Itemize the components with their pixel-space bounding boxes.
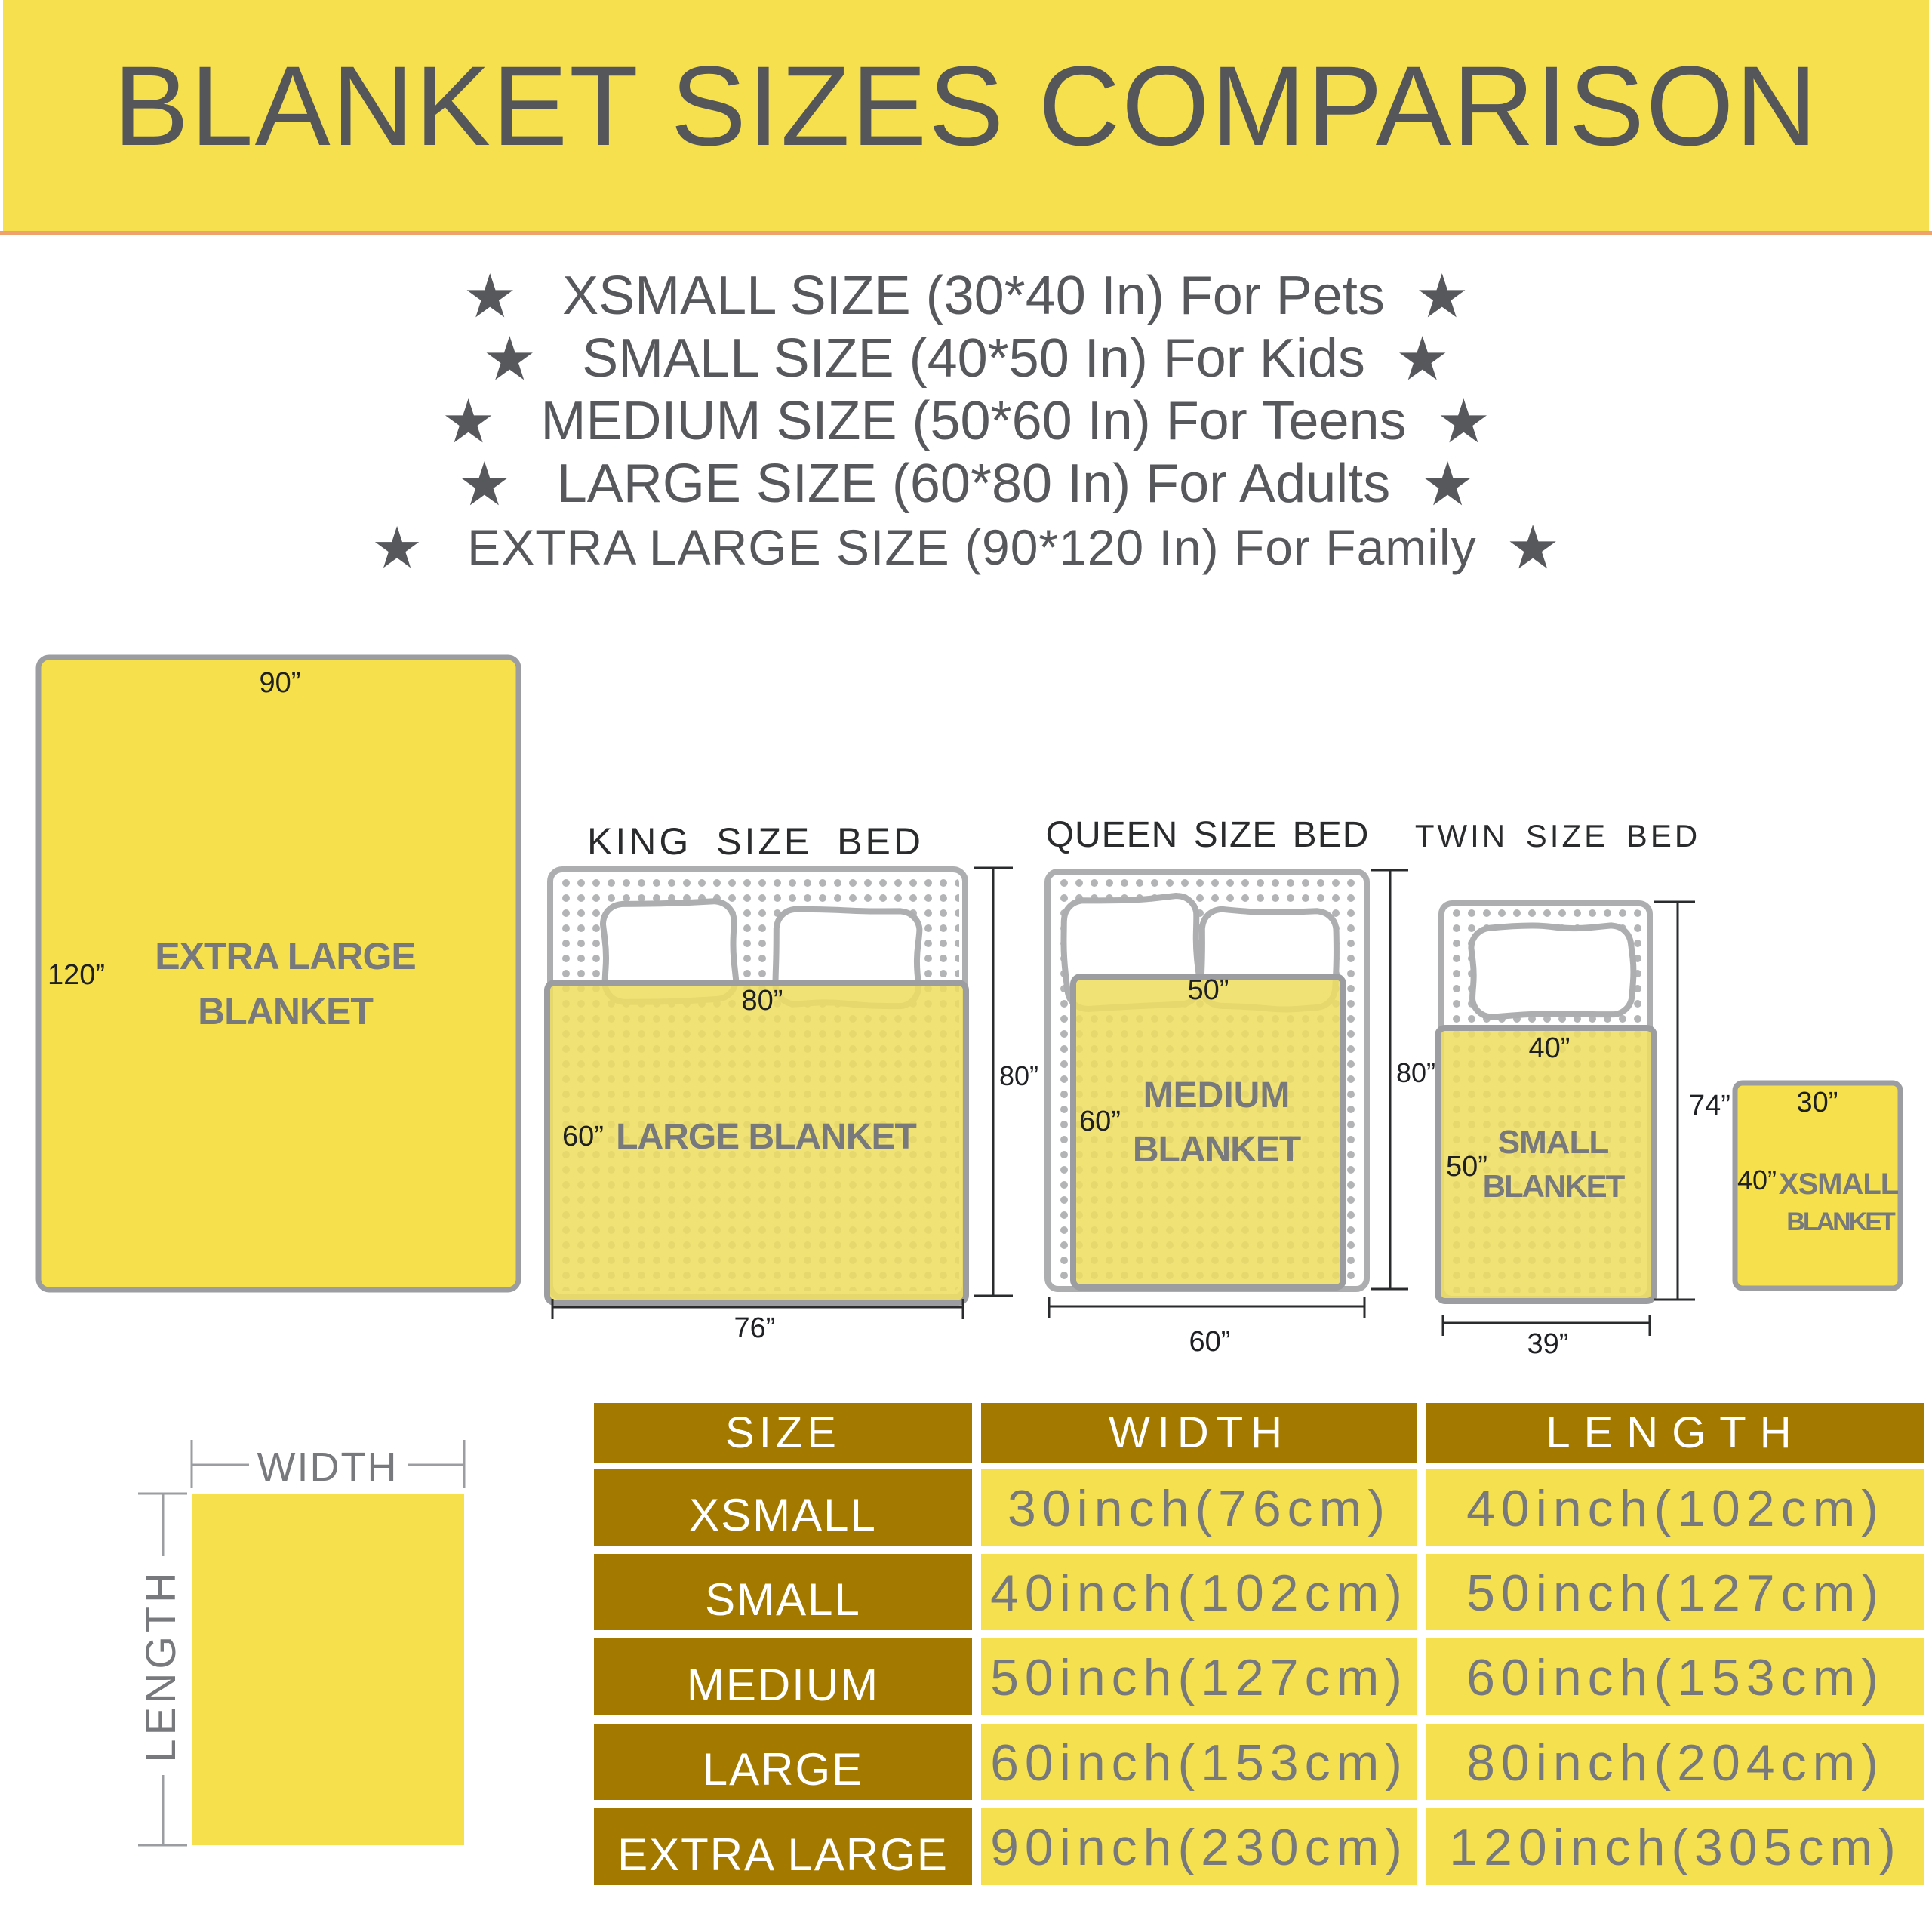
svg-text:XSMALL: XSMALL [1779,1168,1899,1201]
svg-text:60”: 60” [1189,1326,1231,1358]
svg-text:LENGTH: LENGTH [137,1568,184,1762]
svg-text:40”: 40” [1529,1032,1571,1064]
svg-text:BLANKET: BLANKET [1133,1130,1301,1170]
svg-text:BLANKET: BLANKET [1483,1168,1626,1204]
svg-text:60”: 60” [562,1121,604,1152]
svg-text:EXTRA LARGE: EXTRA LARGE [155,935,416,977]
svg-text:KING SIZE BED: KING SIZE BED [587,820,924,863]
svg-text:80”: 80” [742,985,783,1017]
svg-text:39”: 39” [1527,1328,1569,1360]
svg-text:BLANKET: BLANKET [198,990,373,1032]
svg-text:120”: 120” [48,959,105,991]
svg-text:80”: 80” [1396,1057,1435,1088]
svg-text:TWIN SIZE BED: TWIN SIZE BED [1415,818,1700,854]
svg-text:90”: 90” [260,667,301,699]
svg-text:50”: 50” [1446,1151,1487,1183]
svg-text:SMALL: SMALL [1498,1124,1609,1161]
svg-text:76”: 76” [734,1312,776,1344]
svg-text:MEDIUM: MEDIUM [1143,1075,1291,1115]
svg-text:QUEEN SIZE BED: QUEEN SIZE BED [1046,815,1370,855]
svg-text:60”: 60” [1079,1106,1121,1137]
svg-text:BLANKET: BLANKET [1786,1207,1896,1236]
svg-text:80”: 80” [999,1060,1038,1091]
svg-text:WIDTH: WIDTH [257,1444,398,1490]
svg-text:LARGE BLANKET: LARGE BLANKET [616,1117,916,1157]
svg-text:30”: 30” [1797,1087,1838,1118]
svg-text:50”: 50” [1188,974,1229,1006]
svg-text:74”: 74” [1689,1090,1730,1121]
svg-text:40”: 40” [1737,1164,1777,1195]
